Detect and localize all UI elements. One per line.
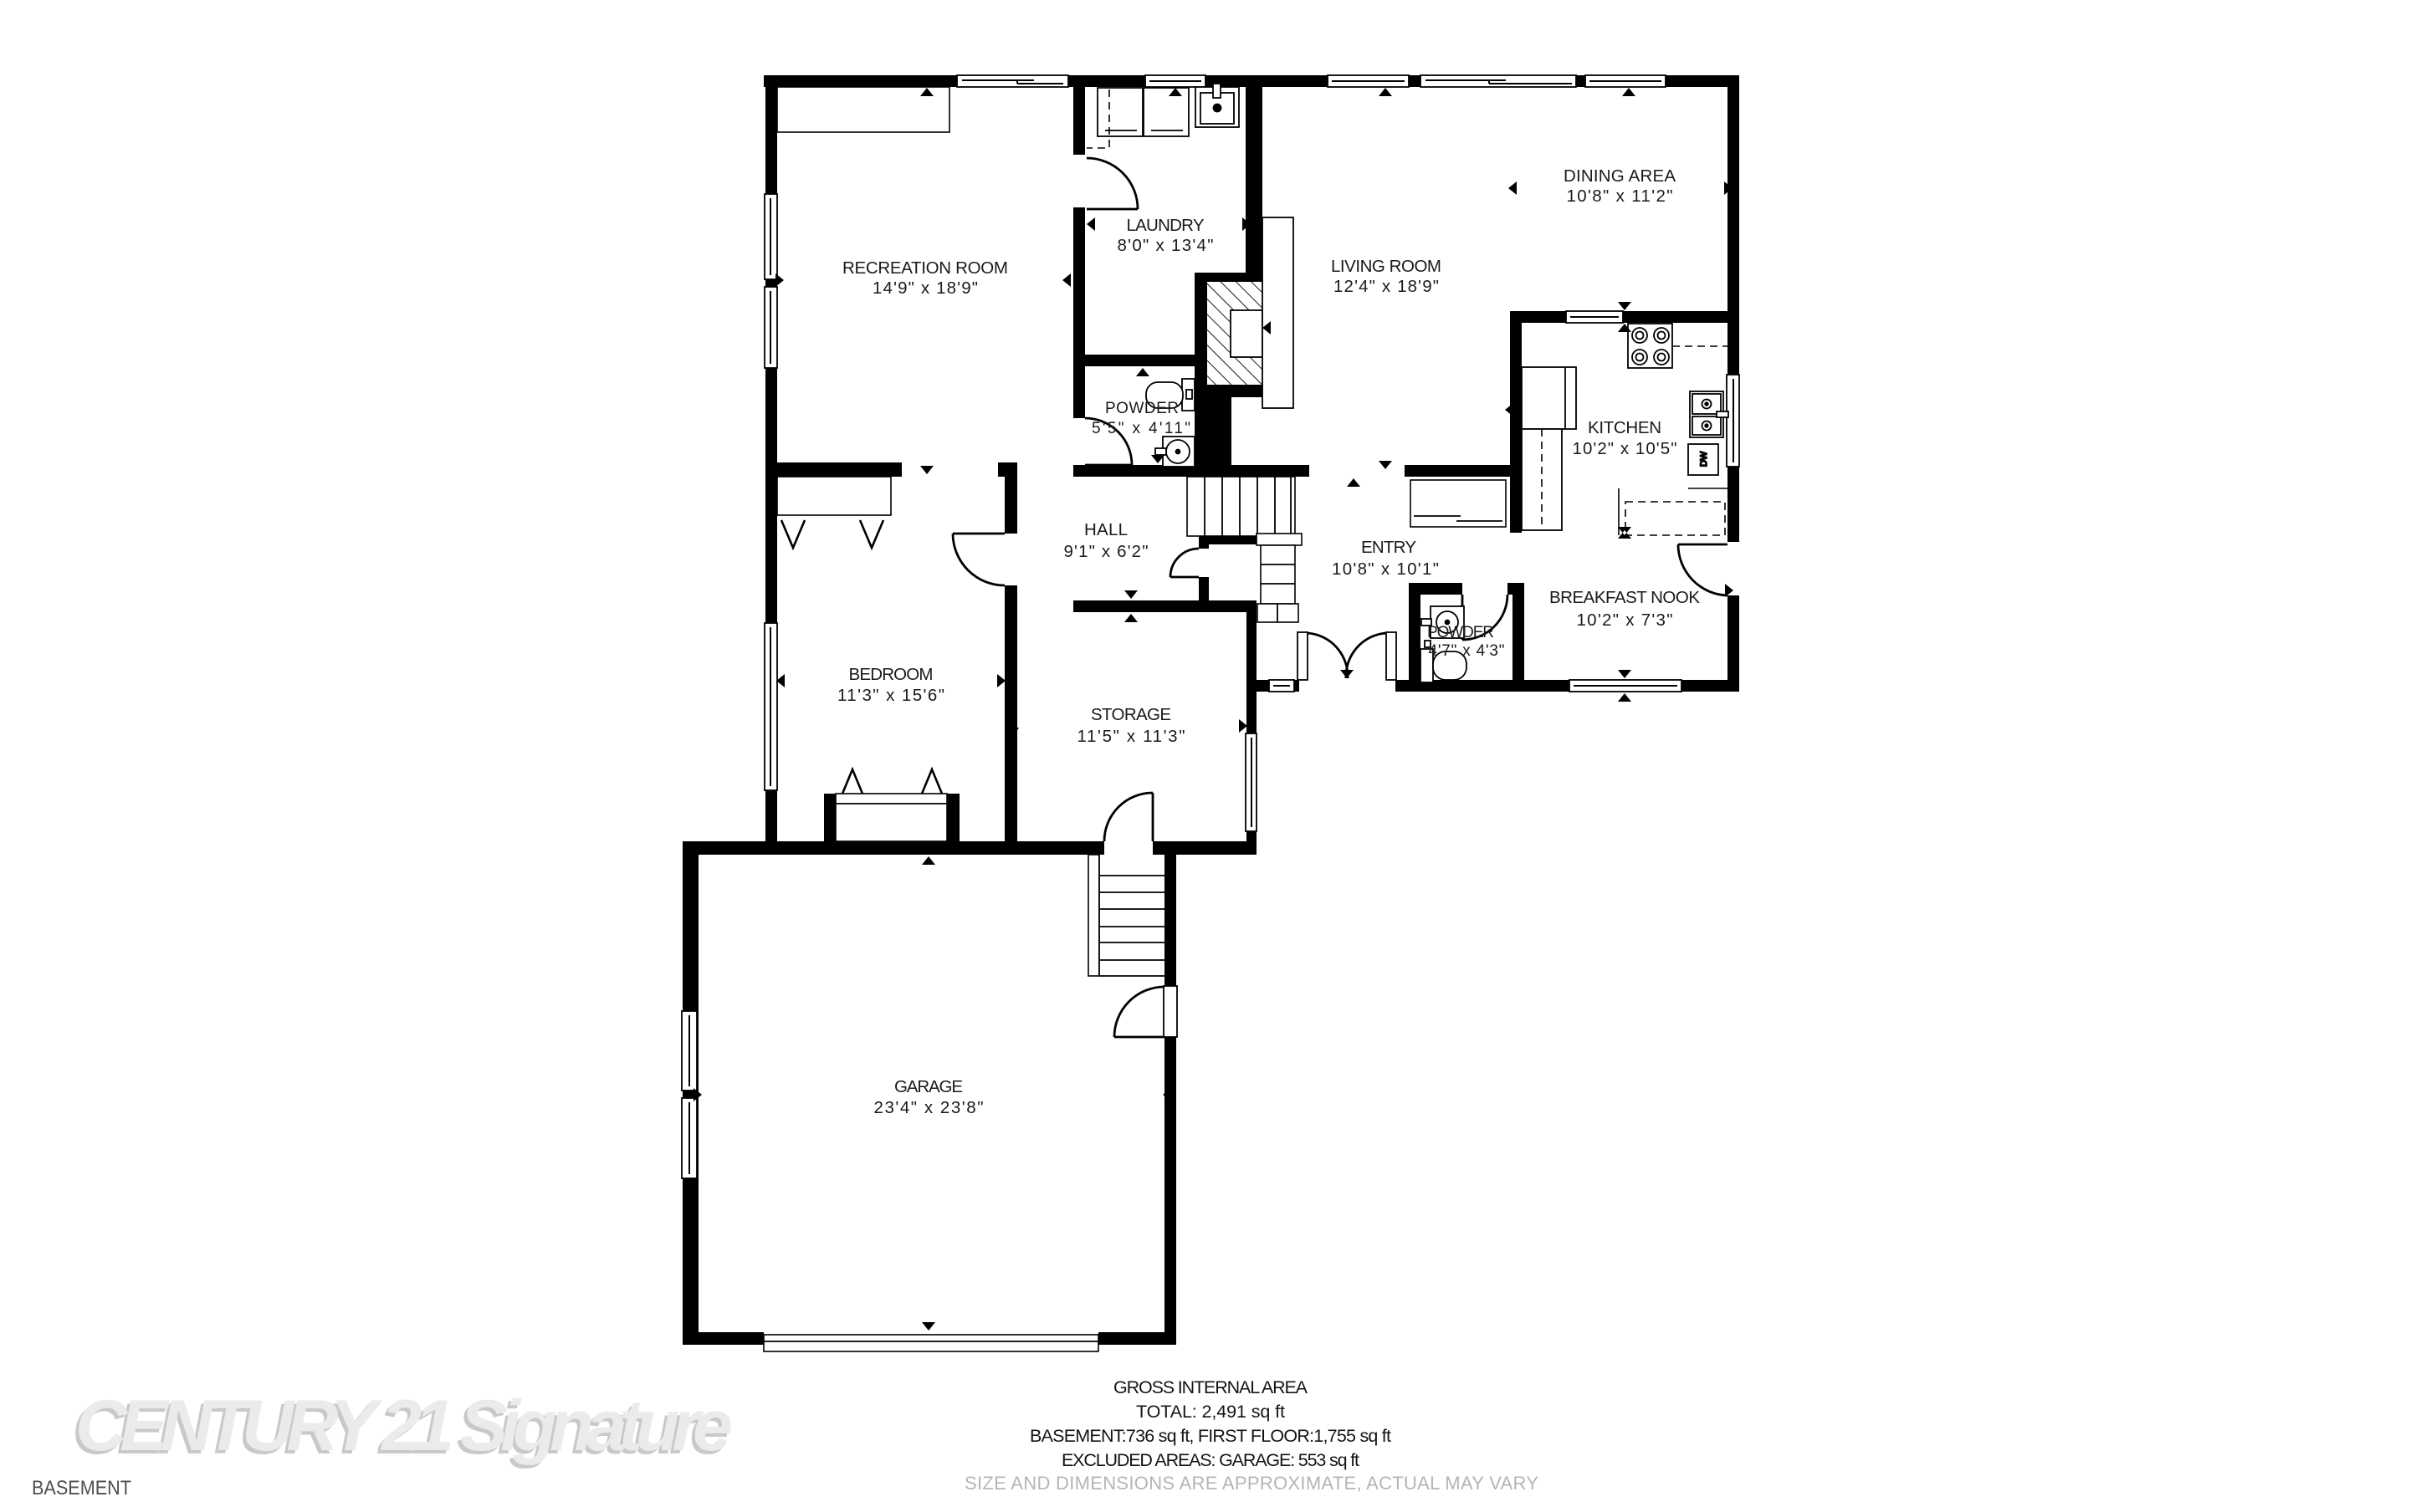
svg-text:POWDER: POWDER (1105, 400, 1179, 417)
svg-text:HALL: HALL (1084, 520, 1128, 539)
svg-text:DINING AREA: DINING AREA (1564, 166, 1676, 186)
svg-text:RECREATION ROOM: RECREATION ROOM (842, 258, 1008, 278)
svg-text:ENTRY: ENTRY (1361, 538, 1416, 557)
svg-text:GROSS INTERNAL AREA: GROSS INTERNAL AREA (1113, 1377, 1308, 1397)
svg-text:4'7" x 4'3": 4'7" x 4'3" (1429, 642, 1505, 660)
svg-text:GARAGE: GARAGE (894, 1077, 963, 1096)
svg-text:SIZE AND DIMENSIONS ARE APPROX: SIZE AND DIMENSIONS ARE APPROXIMATE, ACT… (965, 1473, 1538, 1494)
svg-text:LIVING ROOM: LIVING ROOM (1331, 257, 1441, 276)
svg-text:BEDROOM: BEDROOM (849, 665, 934, 684)
svg-text:14'9" x 18'9": 14'9" x 18'9" (873, 278, 978, 298)
svg-text:EXCLUDED AREAS: GARAGE: 553 sq: EXCLUDED AREAS: GARAGE: 553 sq ft (1062, 1450, 1359, 1470)
svg-text:BASEMENT:736 sq ft, FIRST FLOO: BASEMENT:736 sq ft, FIRST FLOOR:1,755 sq… (1030, 1426, 1391, 1446)
svg-text:11'5" x 11'3": 11'5" x 11'3" (1077, 727, 1185, 746)
svg-text:TOTAL: 2,491 sq ft: TOTAL: 2,491 sq ft (1136, 1402, 1285, 1422)
svg-text:CENTURY 21 Signature: CENTURY 21 Signature (75, 1386, 733, 1466)
svg-text:8'0" x 13'4": 8'0" x 13'4" (1118, 236, 1214, 255)
svg-text:LAUNDRY: LAUNDRY (1127, 216, 1205, 235)
svg-text:23'4" x 23'8": 23'4" x 23'8" (874, 1098, 984, 1117)
svg-text:10'8" x 11'2": 10'8" x 11'2" (1567, 186, 1673, 206)
svg-text:KITCHEN: KITCHEN (1588, 418, 1661, 437)
svg-text:POWDER: POWDER (1427, 624, 1494, 641)
svg-text:11'3" x 15'6": 11'3" x 15'6" (837, 686, 944, 705)
svg-text:12'4" x 18'9": 12'4" x 18'9" (1333, 277, 1439, 296)
svg-text:BASEMENT: BASEMENT (32, 1477, 131, 1499)
svg-text:BREAKFAST NOOK: BREAKFAST NOOK (1549, 588, 1700, 607)
svg-text:10'8" x 10'1": 10'8" x 10'1" (1332, 559, 1439, 579)
svg-text:10'2" x 10'5": 10'2" x 10'5" (1573, 439, 1677, 458)
svg-text:9'1" x 6'2": 9'1" x 6'2" (1064, 542, 1149, 561)
svg-text:STORAGE: STORAGE (1091, 705, 1171, 724)
svg-text:DW: DW (1699, 451, 1709, 467)
